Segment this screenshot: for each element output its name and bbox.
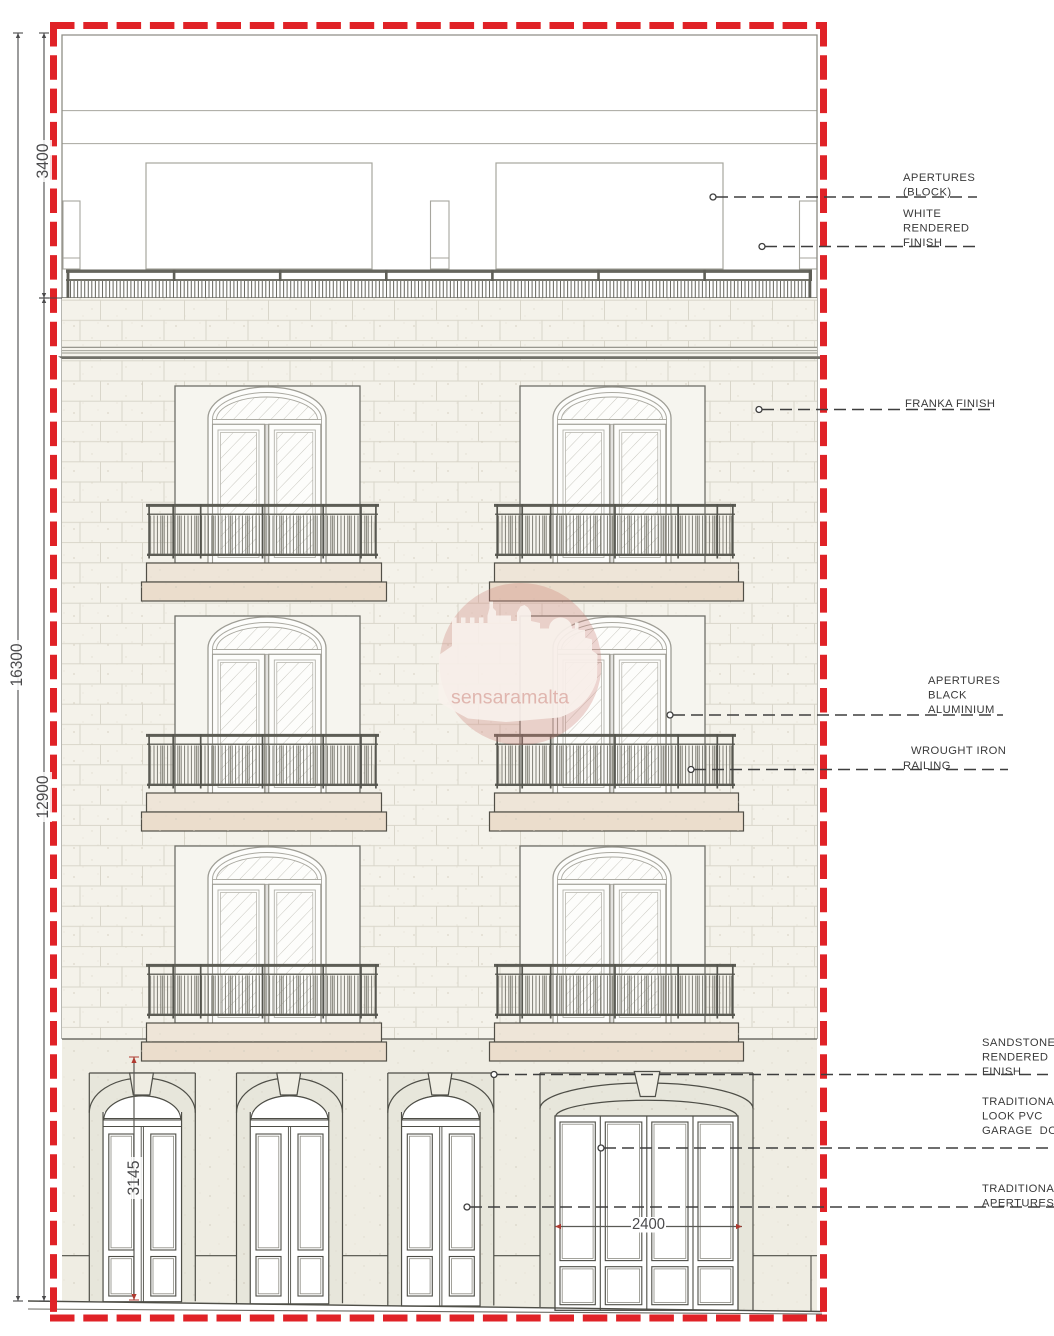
svg-text:RENDERED: RENDERED [903,223,969,235]
svg-text:TRADITIONAL: TRADITIONAL [982,1183,1054,1195]
svg-text:GARAGE DO: GARAGE DO [982,1125,1054,1137]
svg-text:RAILING: RAILING [903,760,951,772]
svg-text:APERTURES: APERTURES [928,675,1000,687]
svg-text:FINISH: FINISH [903,237,942,249]
svg-text:WROUGHT IRON: WROUGHT IRON [911,745,1006,757]
svg-text:APERTURES: APERTURES [982,1198,1054,1210]
svg-text:SANDSTONE: SANDSTONE [982,1037,1054,1049]
svg-text:APERTURES: APERTURES [903,172,975,184]
svg-text:FRANKA FINISH: FRANKA FINISH [905,398,995,410]
svg-text:ALUMINIUM: ALUMINIUM [928,704,995,716]
svg-text:3400: 3400 [34,144,52,179]
svg-text:16300: 16300 [8,644,26,687]
svg-text:12900: 12900 [34,776,52,819]
svg-text:3145: 3145 [125,1161,143,1196]
svg-text:TRADITIONAL: TRADITIONAL [982,1096,1054,1108]
svg-text:BLACK: BLACK [928,690,967,702]
svg-text:FINISH: FINISH [982,1066,1021,1078]
svg-text:(BLOCK): (BLOCK) [903,187,952,199]
svg-text:LOOK PVC: LOOK PVC [982,1111,1043,1123]
svg-text:RENDERED: RENDERED [982,1052,1048,1064]
svg-text:2400: 2400 [632,1216,665,1233]
svg-text:sensaramalta: sensaramalta [451,687,569,709]
svg-text:WHITE: WHITE [903,208,941,220]
